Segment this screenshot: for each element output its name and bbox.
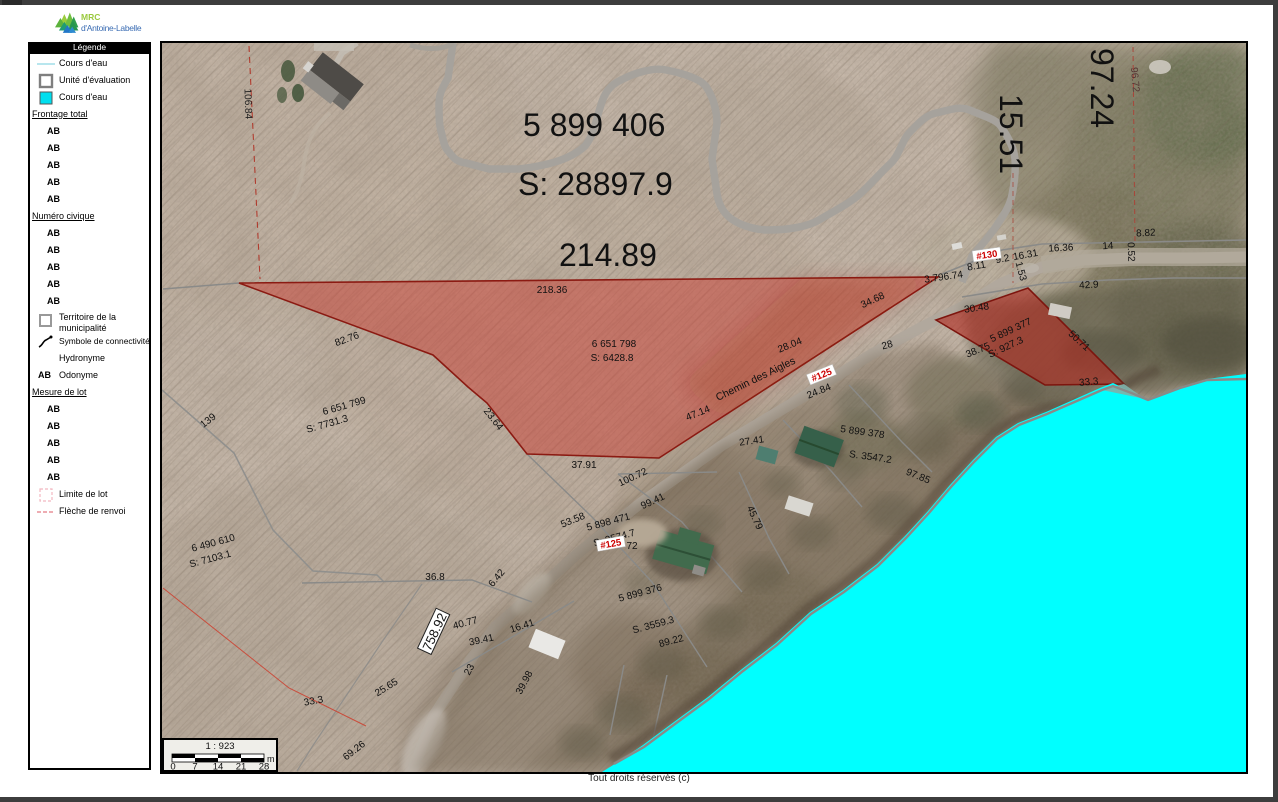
svg-text:21: 21 xyxy=(236,762,247,773)
svg-text:16.36: 16.36 xyxy=(1048,242,1074,254)
svg-text:0.52: 0.52 xyxy=(1125,242,1137,262)
svg-text:6 651 798: 6 651 798 xyxy=(592,339,637,350)
svg-text:37.91: 37.91 xyxy=(571,460,596,471)
svg-text:36.8: 36.8 xyxy=(425,572,445,583)
svg-text:S: 28897.9: S: 28897.9 xyxy=(518,166,673,202)
svg-text:14: 14 xyxy=(1102,241,1114,253)
svg-text:0: 0 xyxy=(170,762,175,773)
svg-text:5 899 406: 5 899 406 xyxy=(523,107,665,143)
svg-text:MRC: MRC xyxy=(81,12,100,22)
svg-text:1 : 923: 1 : 923 xyxy=(205,741,234,752)
svg-text:218.36: 218.36 xyxy=(537,285,568,296)
svg-text:14: 14 xyxy=(213,762,224,773)
svg-text:33.3: 33.3 xyxy=(1079,376,1100,389)
svg-text:96.72: 96.72 xyxy=(1128,67,1141,93)
svg-text:28: 28 xyxy=(259,762,270,773)
svg-text:72: 72 xyxy=(626,541,638,552)
svg-text:8.82: 8.82 xyxy=(1136,227,1156,239)
svg-text:15.51: 15.51 xyxy=(993,94,1029,174)
svg-text:42.9: 42.9 xyxy=(1079,279,1099,291)
svg-text:d'Antoine-Labelle: d'Antoine-Labelle xyxy=(81,23,142,33)
svg-text:97.24: 97.24 xyxy=(1084,48,1120,128)
svg-text:S: 6428.8: S: 6428.8 xyxy=(591,353,634,364)
svg-text:106.84: 106.84 xyxy=(241,88,253,119)
svg-text:7: 7 xyxy=(192,762,197,773)
svg-text:214.89: 214.89 xyxy=(559,237,657,273)
